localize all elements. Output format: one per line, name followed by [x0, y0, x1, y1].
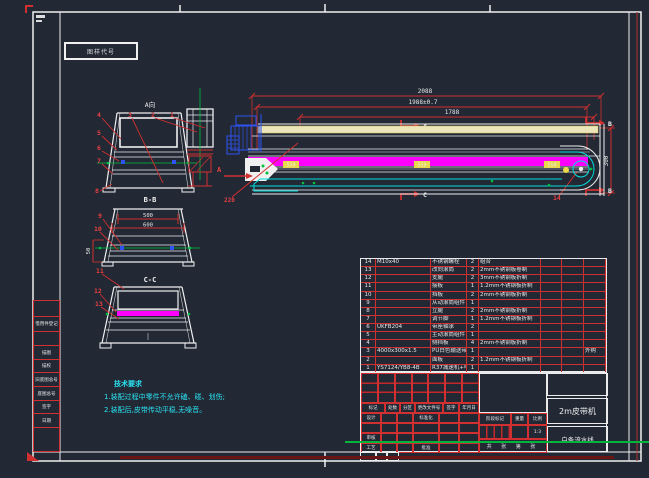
bom-cell: 1: [467, 332, 479, 340]
bom-cell: 组合: [479, 259, 541, 267]
hdr-sign: 签字: [443, 403, 459, 413]
bom-row: 34000x300x1.5PU白色输送带1外购: [361, 348, 606, 356]
margin-cell: 日期: [33, 413, 60, 427]
bom-cell: [541, 259, 562, 267]
change-cell: [361, 373, 378, 403]
bom-cell: M10x40: [376, 259, 431, 267]
bom-cell: 12: [361, 275, 376, 283]
end-view: [187, 88, 213, 186]
margin-cell: [33, 331, 60, 345]
bom-row: 13改向滚筒22mm不锈钢板卷制: [361, 267, 606, 275]
bom-cell: 从动滚筒组件: [431, 300, 467, 308]
bom-cell: [562, 300, 584, 308]
hdr-date: 年月日: [459, 403, 479, 413]
bom-cell: [376, 316, 431, 324]
margin-cell: 描校: [33, 359, 60, 372]
signature-cell: 标准化: [413, 413, 439, 423]
bom-cell: 1.2mm不锈钢板折制: [479, 357, 541, 365]
section-bb-label: B-B: [144, 196, 157, 204]
section-view-cc: C-C: [100, 276, 196, 348]
bom-cell: 侧挡板: [431, 340, 467, 348]
section-view-bb: A向 B-B: [97, 100, 197, 204]
bom-cell: [541, 332, 562, 340]
bom-cell: [584, 275, 606, 283]
belt-top-cream: [258, 126, 598, 133]
belt-tag-2: 550: [417, 163, 426, 169]
signature-cell: [413, 423, 439, 433]
bom-cell: 1: [467, 300, 479, 308]
bom-cell: [562, 348, 584, 356]
bom-cell: 带座轴承: [431, 324, 467, 332]
bom-cell: [562, 267, 584, 275]
margin-cell: [33, 427, 60, 452]
dim-width-top: 500: [143, 213, 153, 219]
bom-row: 8立腿22mm不锈钢板折制: [361, 308, 606, 316]
change-record-header: 标记 处数 分区 更改文件号 签字 年月日: [361, 403, 479, 413]
signature-cell: 批准: [413, 443, 439, 453]
bom-cell: [562, 324, 584, 332]
callout-11: 11: [96, 267, 104, 275]
bom-cell: 2: [467, 275, 479, 283]
weight-value: [511, 425, 528, 439]
cut-letter-b-bottom: B: [608, 187, 612, 195]
bom-cell: [479, 300, 541, 308]
bom-row: 4侧挡板42mm不锈钢板折制: [361, 340, 606, 348]
bom-cell: 2: [467, 292, 479, 300]
bom-cell: PU白色输送带: [431, 348, 467, 356]
section-view-mid: 500 600 50: [86, 209, 200, 266]
bom-cell: [541, 308, 562, 316]
callout-6: 6: [97, 144, 101, 152]
bom-cell: 5: [361, 332, 376, 340]
bom-cell: [376, 267, 431, 275]
bom-cell: [376, 283, 431, 291]
dim-toleranced: 1988±0.7: [409, 99, 438, 106]
bom-cell: [562, 275, 584, 283]
bom-cell: 2mm不锈钢板折制: [479, 340, 541, 348]
conveyor-dimensions: 2088 1988±0.7 1788 300: [249, 88, 615, 196]
margin-cell: 旧底图总号: [33, 372, 60, 386]
stage-value-row: 1:3: [479, 425, 547, 439]
conveyor-body: [248, 124, 604, 196]
callout-1: 1: [170, 111, 174, 119]
stage-mark-box: [479, 373, 547, 413]
bom-cell: [562, 292, 584, 300]
project-name: 白条流水线: [561, 434, 594, 444]
cut-letter-c-bottom: C: [423, 191, 427, 199]
hdr-docno: 更改文件号: [415, 403, 443, 413]
signature-cell: [381, 423, 397, 433]
signature-cell: [459, 423, 479, 433]
change-cell: [378, 373, 395, 403]
cad-sheet[interactable]: A向 B-B: [0, 0, 649, 478]
bom-cell: [541, 324, 562, 332]
drawing-code-label: 图样代号: [87, 47, 115, 56]
signature-cell: [459, 413, 479, 423]
bom-cell: 2: [361, 357, 376, 365]
bom-cell: 2mm不锈钢板折制: [479, 292, 541, 300]
hdr-count: 处数: [385, 403, 400, 413]
change-record-cells: [361, 373, 479, 403]
bom-cell: 改向滚筒: [431, 267, 467, 275]
callout-3: 3: [128, 111, 132, 119]
bom-cell: [584, 332, 606, 340]
bom-row: 2面板21.2mm不锈钢板折制: [361, 357, 606, 365]
bom-cell: [479, 348, 541, 356]
bom-cell: [376, 340, 431, 348]
bom-cell: 2: [467, 357, 479, 365]
view-arrow-letter: A: [217, 166, 222, 174]
callout-9: 9: [98, 212, 102, 220]
bom-cell: [584, 292, 606, 300]
bom-row: 7调节脚11.2mm不锈钢板折制: [361, 316, 606, 324]
cut-letter-b-top: B: [608, 120, 612, 128]
bom-cell: [562, 308, 584, 316]
notes-title: 技术要求: [114, 378, 324, 391]
bom-row: 6UKFB204带座轴承2: [361, 324, 606, 332]
bom-cell: 1.2mm不锈钢板折制: [479, 283, 541, 291]
bom-cell: [584, 259, 606, 267]
margin-cell: 描图: [33, 345, 60, 359]
bom-cell: [541, 357, 562, 365]
bom-cell: [562, 332, 584, 340]
bom-cell: UKFB204: [376, 324, 431, 332]
margin-cell: [33, 300, 60, 316]
bom-cell: [541, 267, 562, 275]
bom-cell: 调节脚: [431, 316, 467, 324]
bom-cell: [376, 300, 431, 308]
bom-cell: [584, 308, 606, 316]
bom-cell: [541, 348, 562, 356]
bom-cell: 9: [361, 300, 376, 308]
bom-cell: 2: [467, 267, 479, 275]
dim-inner: 1788: [445, 109, 460, 116]
company-box: [547, 373, 608, 396]
signature-cell: [439, 443, 459, 453]
signature-cell: [397, 423, 413, 433]
bom-row: 14M10x40不锈钢螺栓2组合: [361, 259, 606, 267]
bom-row: 5主动滚筒组件1: [361, 332, 606, 340]
signature-cell: [381, 413, 397, 423]
bom-cell: 主动滚筒组件: [431, 332, 467, 340]
bom-cell: 面板: [431, 357, 467, 365]
bom-cell: 不锈钢螺栓: [431, 259, 467, 267]
view-direction-label: A向: [145, 100, 155, 109]
weight-label: 重量: [511, 413, 528, 425]
bom-cell: 7: [361, 316, 376, 324]
stage-label: 阶段标记: [479, 413, 511, 425]
bom-cell: [562, 316, 584, 324]
signature-cell: [361, 423, 381, 433]
project-name-box: 白条流水线: [547, 426, 608, 452]
bom-cell: 14: [361, 259, 376, 267]
signature-cell: 设计: [361, 413, 381, 423]
bom-row: 9从动滚筒组件1: [361, 300, 606, 308]
bom-cell: [376, 308, 431, 316]
product-name-box: 2m皮带机: [547, 398, 608, 424]
bom-cell: 4: [467, 340, 479, 348]
bom-cell: [584, 316, 606, 324]
signature-cell: [397, 413, 413, 423]
bom-cell: [584, 283, 606, 291]
bom-cell: 立腿: [431, 308, 467, 316]
technical-notes: 技术要求 1.装配过程中零件不允许磕、碰、划伤; 2.装配后,皮带传动平稳,无噪…: [104, 378, 324, 417]
bom-cell: 1: [467, 283, 479, 291]
note-line-1: 1.装配过程中零件不允许磕、碰、划伤;: [104, 391, 324, 404]
callout-10: 10: [94, 225, 102, 233]
scale-value: 1:3: [528, 425, 547, 439]
margin-column: 借用件登记描图描校旧底图总号底图总号签字日期: [33, 300, 60, 452]
bom-cell: 支腿: [431, 275, 467, 283]
change-cell: [428, 373, 445, 403]
drawing-code-box: 图样代号: [64, 42, 138, 60]
callout-14: 14: [553, 194, 561, 202]
bom-cell: [479, 324, 541, 332]
belt-tag-1: 550: [286, 163, 295, 169]
bom-cell: 3: [361, 348, 376, 356]
bom-cell: 2: [467, 308, 479, 316]
margin-cell: 签字: [33, 400, 60, 413]
bom-cell: 2: [467, 259, 479, 267]
bom-cell: 挡板: [431, 292, 467, 300]
change-cell: [412, 373, 429, 403]
bom-cell: 4: [361, 340, 376, 348]
bom-cell: 外购: [584, 348, 606, 356]
signature-cell: [439, 413, 459, 423]
bom-cell: 接板: [431, 283, 467, 291]
bom-cell: [562, 340, 584, 348]
bom-cell: 1: [467, 348, 479, 356]
dim-leg: 50: [86, 248, 92, 255]
bom-cell: 1: [467, 316, 479, 324]
bom-cell: [376, 332, 431, 340]
title-block: 标记 处数 分区 更改文件号 签字 年月日 设计标准化审核工艺批准 阶段标记 重…: [360, 372, 607, 452]
bom-cell: [584, 357, 606, 365]
bom-cell: 8: [361, 308, 376, 316]
margin-cell: 底图总号: [33, 386, 60, 400]
bom-cell: [562, 357, 584, 365]
bom-cell: [541, 340, 562, 348]
bom-cell: 13: [361, 267, 376, 275]
dim-overall: 2088: [418, 88, 433, 95]
belt-tag-3: 550: [547, 163, 556, 169]
section-cc-label: C-C: [144, 276, 157, 284]
bom-row: 11接板11.2mm不锈钢板折制: [361, 283, 606, 291]
bottom-red-band: [120, 456, 614, 459]
callout-7: 7: [97, 157, 101, 165]
bom-row: 12支腿23mm不锈钢板折制: [361, 275, 606, 283]
change-cell: [462, 373, 479, 403]
bom-cell: 1.2mm不锈钢板折制: [479, 316, 541, 324]
bom-cell: 11: [361, 283, 376, 291]
bom-cell: 4000x300x1.5: [376, 348, 431, 356]
bom-cell: 2mm不锈钢板卷制: [479, 267, 541, 275]
callout-5: 5: [97, 129, 101, 137]
stage-marks: [479, 425, 511, 439]
hdr-mark: 标记: [361, 403, 385, 413]
bom-cell: [541, 275, 562, 283]
signature-cell: [439, 423, 459, 433]
stage-header-row: 阶段标记 重量 比例: [479, 413, 547, 425]
hdr-zone: 分区: [400, 403, 415, 413]
belt-strip-magenta: [117, 311, 179, 316]
bom-cell: [584, 267, 606, 275]
bom-cell: [541, 292, 562, 300]
scale-label: 比例: [528, 413, 547, 425]
bom-cell: [376, 357, 431, 365]
tail-pulley-marker: [563, 167, 569, 173]
bom-cell: [376, 292, 431, 300]
bom-cell: [376, 275, 431, 283]
bom-table: 14M10x40不锈钢螺栓2组合13改向滚筒22mm不锈钢板卷制12支腿23mm…: [360, 258, 607, 372]
change-cell: [395, 373, 412, 403]
bom-cell: [584, 324, 606, 332]
callout-13: 13: [95, 300, 103, 308]
product-name: 2m皮带机: [559, 406, 596, 417]
bom-cell: 10: [361, 292, 376, 300]
bom-cell: 2mm不锈钢板折制: [479, 308, 541, 316]
bom-cell: [541, 283, 562, 291]
drive-note-label: 220: [224, 197, 235, 204]
callout-4: 4: [97, 111, 101, 119]
bom-cell: 2: [467, 324, 479, 332]
bom-cell: [479, 332, 541, 340]
bom-cell: 6: [361, 324, 376, 332]
callout-2: 2: [151, 111, 155, 119]
signature-cell: [459, 443, 479, 453]
stray-green-line: [345, 441, 649, 443]
dim-width-bottom: 600: [143, 223, 153, 229]
callout-12: 12: [94, 287, 102, 295]
callout-8: 8: [95, 187, 99, 195]
bom-cell: [584, 340, 606, 348]
margin-cell: 借用件登记: [33, 316, 60, 331]
change-cell: [445, 373, 462, 403]
bom-cell: [584, 300, 606, 308]
bom-cell: [562, 283, 584, 291]
bom-cell: [541, 300, 562, 308]
bom-cell: [541, 316, 562, 324]
bom-cell: [562, 259, 584, 267]
bom-cell: 3mm不锈钢板折制: [479, 275, 541, 283]
bom-row: 10挡板22mm不锈钢板折制: [361, 292, 606, 300]
note-line-2: 2.装配后,皮带传动平稳,无噪音。: [104, 404, 324, 417]
signature-grid: 设计标准化审核工艺批准: [361, 413, 479, 453]
